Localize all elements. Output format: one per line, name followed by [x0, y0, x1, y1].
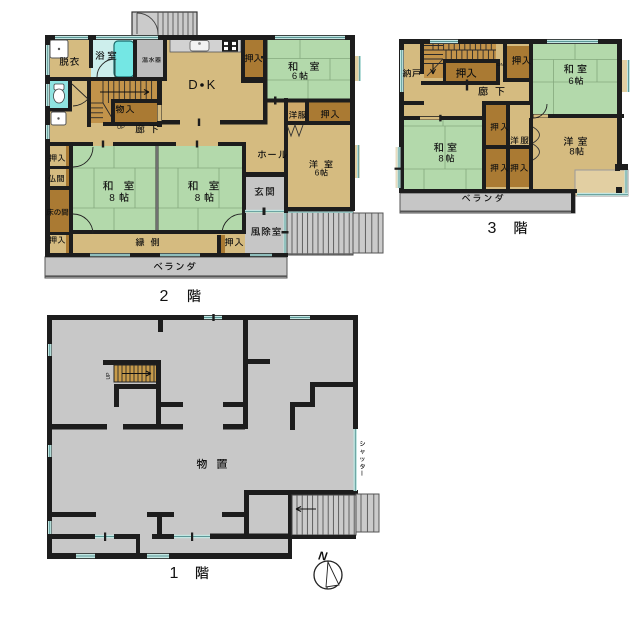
svg-text:K: K: [207, 77, 216, 92]
svg-text:8: 8: [569, 147, 574, 158]
svg-text:6: 6: [315, 168, 320, 178]
svg-text:D: D: [188, 77, 197, 92]
svg-text:UP: UP: [117, 125, 125, 131]
svg-text:8: 8: [109, 193, 115, 204]
svg-text:UP: UP: [106, 372, 112, 380]
svg-text:6: 6: [568, 76, 573, 87]
svg-text:3: 3: [488, 220, 497, 237]
svg-text:8: 8: [438, 154, 443, 165]
svg-text:2: 2: [160, 288, 169, 305]
svg-text:6: 6: [292, 71, 297, 82]
svg-text:8: 8: [195, 193, 201, 204]
svg-text:1: 1: [170, 565, 179, 582]
svg-text:DN: DN: [497, 62, 504, 67]
